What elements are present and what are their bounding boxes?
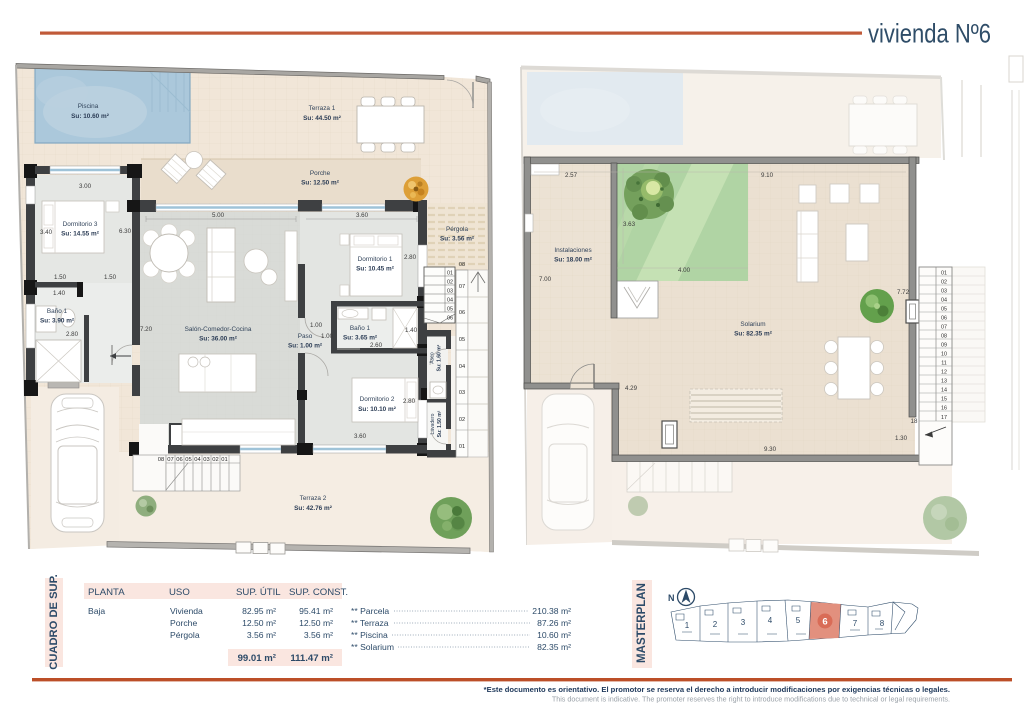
- svg-text:05: 05: [459, 337, 465, 343]
- svg-text:07: 07: [167, 457, 173, 463]
- svg-text:3: 3: [741, 618, 746, 627]
- svg-text:Su: 82.35 m²: Su: 82.35 m²: [734, 331, 772, 338]
- svg-text:17: 17: [941, 415, 947, 421]
- svg-text:1.00: 1.00: [321, 333, 334, 340]
- svg-text:Su: 1.00 m²: Su: 1.00 m²: [288, 343, 322, 350]
- svg-text:15: 15: [941, 397, 947, 403]
- svg-text:** Solarium: ** Solarium: [351, 642, 394, 652]
- svg-text:01: 01: [941, 271, 947, 277]
- svg-text:Paso: Paso: [298, 333, 313, 340]
- svg-text:1.40: 1.40: [405, 327, 418, 334]
- svg-text:MASTERPLAN: MASTERPLAN: [636, 583, 648, 663]
- svg-text:03: 03: [203, 457, 209, 463]
- svg-text:01: 01: [221, 457, 227, 463]
- svg-text:01: 01: [447, 271, 453, 277]
- svg-text:vivienda Nº6: vivienda Nº6: [868, 19, 991, 49]
- svg-text:Su: 10.60 m²: Su: 10.60 m²: [71, 113, 109, 120]
- svg-text:111.47 m²: 111.47 m²: [290, 653, 333, 664]
- svg-text:4: 4: [768, 616, 773, 625]
- svg-text:2.80: 2.80: [66, 331, 79, 338]
- svg-text:02: 02: [447, 280, 453, 286]
- svg-text:1.40: 1.40: [53, 290, 66, 297]
- svg-text:Dormitorio 3: Dormitorio 3: [63, 221, 98, 228]
- svg-text:06: 06: [447, 316, 453, 322]
- svg-text:12: 12: [941, 370, 947, 376]
- svg-text:7.72: 7.72: [897, 289, 910, 296]
- svg-text:Piscina: Piscina: [78, 103, 99, 110]
- svg-text:08: 08: [459, 262, 465, 268]
- svg-text:1.30: 1.30: [895, 435, 908, 442]
- svg-text:PLANTA: PLANTA: [88, 587, 125, 598]
- svg-text:Su: 12.50 m²: Su: 12.50 m²: [301, 180, 339, 187]
- svg-text:9.10: 9.10: [761, 172, 774, 179]
- svg-text:09: 09: [941, 343, 947, 349]
- svg-text:2: 2: [713, 620, 718, 629]
- svg-text:Salón-Comedor-Cocina: Salón-Comedor-Cocina: [185, 326, 252, 333]
- svg-text:04: 04: [941, 298, 947, 304]
- svg-text:3.60: 3.60: [356, 212, 369, 219]
- svg-text:Terraza 1: Terraza 1: [309, 105, 336, 112]
- svg-text:02: 02: [459, 417, 465, 423]
- svg-text:3.00: 3.00: [79, 183, 92, 190]
- svg-text:08: 08: [941, 334, 947, 340]
- svg-text:04: 04: [447, 298, 453, 304]
- svg-text:3.40: 3.40: [40, 229, 53, 236]
- svg-text:1.50: 1.50: [104, 274, 117, 281]
- svg-text:6: 6: [822, 617, 827, 628]
- svg-text:** Terraza: ** Terraza: [351, 618, 389, 628]
- svg-text:3.63: 3.63: [623, 221, 636, 228]
- svg-text:Su: 44.50 m²: Su: 44.50 m²: [303, 115, 341, 122]
- svg-text:02: 02: [941, 280, 947, 286]
- svg-text:03: 03: [941, 289, 947, 295]
- svg-text:3.60: 3.60: [354, 433, 367, 440]
- svg-text:87.26 m²: 87.26 m²: [537, 618, 571, 628]
- svg-text:Porche: Porche: [170, 618, 197, 628]
- svg-text:04: 04: [194, 457, 201, 463]
- svg-text:2.80: 2.80: [403, 398, 416, 405]
- svg-text:18: 18: [911, 418, 918, 425]
- svg-text:5: 5: [796, 616, 801, 625]
- svg-text:11: 11: [941, 361, 947, 367]
- svg-text:2.57: 2.57: [565, 172, 578, 179]
- svg-text:06: 06: [176, 457, 182, 463]
- svg-text:Baño 1: Baño 1: [47, 308, 68, 315]
- svg-text:13: 13: [941, 379, 947, 385]
- svg-text:3.56 m²: 3.56 m²: [304, 630, 333, 640]
- svg-text:4.00: 4.00: [678, 267, 691, 274]
- svg-text:Porche: Porche: [310, 170, 331, 177]
- svg-text:08: 08: [158, 457, 164, 463]
- svg-text:Su: 14.55 m²: Su: 14.55 m²: [61, 231, 99, 238]
- svg-text:99.01 m²: 99.01 m²: [238, 653, 276, 664]
- svg-text:7.20: 7.20: [140, 326, 153, 333]
- svg-text:7: 7: [853, 619, 858, 628]
- svg-text:6.30: 6.30: [119, 228, 132, 235]
- svg-text:Su: 3.65 m²: Su: 3.65 m²: [343, 335, 377, 342]
- svg-text:14: 14: [941, 388, 947, 394]
- svg-text:Su: 3.56 m²: Su: 3.56 m²: [440, 236, 474, 243]
- svg-text:05: 05: [447, 307, 453, 313]
- svg-text:Su: 18.00 m²: Su: 18.00 m²: [554, 257, 592, 264]
- svg-text:Su: 3.90 m²: Su: 3.90 m²: [40, 318, 74, 325]
- svg-text:This document is indicative. T: This document is indicative. The promote…: [552, 695, 950, 704]
- svg-text:06: 06: [941, 316, 947, 322]
- svg-text:Lavadero: Lavadero: [430, 413, 436, 434]
- svg-text:Instalaciones: Instalaciones: [554, 247, 591, 254]
- svg-text:** Piscina: ** Piscina: [351, 630, 388, 640]
- svg-text:9.30: 9.30: [764, 446, 777, 453]
- svg-text:8: 8: [880, 619, 885, 628]
- svg-text:210.38 m²: 210.38 m²: [532, 606, 571, 616]
- svg-text:Solarium: Solarium: [740, 321, 765, 328]
- svg-text:5.00: 5.00: [212, 212, 225, 219]
- svg-text:Su: 36.00 m²: Su: 36.00 m²: [199, 336, 237, 343]
- svg-text:1.00: 1.00: [310, 322, 323, 329]
- svg-text:N: N: [668, 593, 675, 603]
- svg-text:** Parcela: ** Parcela: [351, 606, 389, 616]
- svg-text:Su: 10.45 m²: Su: 10.45 m²: [356, 266, 394, 273]
- svg-text:07: 07: [941, 325, 947, 331]
- svg-text:Su: 42.76 m²: Su: 42.76 m²: [294, 505, 332, 512]
- svg-text:Su: 10.10 m²: Su: 10.10 m²: [358, 406, 396, 413]
- svg-text:Terraza 2: Terraza 2: [300, 495, 327, 502]
- svg-text:7.00: 7.00: [539, 276, 552, 283]
- svg-text:04: 04: [459, 364, 465, 370]
- svg-text:82.35 m²: 82.35 m²: [537, 642, 571, 652]
- svg-text:CUADRO DE SUP.: CUADRO DE SUP.: [48, 574, 60, 670]
- svg-text:Vivienda: Vivienda: [170, 606, 203, 616]
- svg-text:03: 03: [447, 289, 453, 295]
- svg-text:3.56 m²: 3.56 m²: [247, 630, 276, 640]
- svg-text:SUP. CONST.: SUP. CONST.: [289, 587, 348, 598]
- svg-text:*Este documento es orientativo: *Este documento es orientativo. El promo…: [484, 685, 950, 694]
- svg-text:2.60: 2.60: [370, 342, 383, 349]
- svg-text:Dormitorio 2: Dormitorio 2: [360, 396, 395, 403]
- svg-text:Su: 1.50 m²: Su: 1.50 m²: [437, 410, 443, 437]
- svg-text:16: 16: [941, 406, 947, 412]
- svg-text:01: 01: [459, 444, 465, 450]
- svg-text:4.29: 4.29: [625, 385, 638, 392]
- svg-text:05: 05: [185, 457, 191, 463]
- svg-text:Pérgola: Pérgola: [170, 630, 200, 640]
- svg-text:12.50 m²: 12.50 m²: [242, 618, 276, 628]
- svg-text:2.80: 2.80: [404, 254, 417, 261]
- svg-text:12.50 m²: 12.50 m²: [299, 618, 333, 628]
- svg-text:06: 06: [459, 310, 465, 316]
- svg-text:10: 10: [941, 352, 947, 358]
- svg-text:SUP. ÚTIL: SUP. ÚTIL: [236, 587, 281, 598]
- svg-text:USO: USO: [169, 587, 190, 598]
- svg-text:07: 07: [459, 284, 465, 290]
- svg-text:82.95 m²: 82.95 m²: [242, 606, 276, 616]
- svg-text:05: 05: [941, 307, 947, 313]
- svg-text:1: 1: [685, 621, 690, 630]
- svg-text:10.60 m²: 10.60 m²: [537, 630, 571, 640]
- svg-text:1.50: 1.50: [54, 274, 67, 281]
- svg-text:Pérgola: Pérgola: [446, 226, 468, 233]
- svg-text:03: 03: [459, 390, 465, 396]
- svg-text:95.41 m²: 95.41 m²: [299, 606, 333, 616]
- svg-text:Baño 1: Baño 1: [350, 325, 371, 332]
- svg-text:02: 02: [212, 457, 218, 463]
- svg-text:Aseo: Aseo: [430, 352, 436, 364]
- svg-text:Su: 1.60 m²: Su: 1.60 m²: [437, 344, 443, 371]
- svg-text:Baja: Baja: [88, 606, 105, 616]
- svg-text:Dormitorio 1: Dormitorio 1: [358, 256, 393, 263]
